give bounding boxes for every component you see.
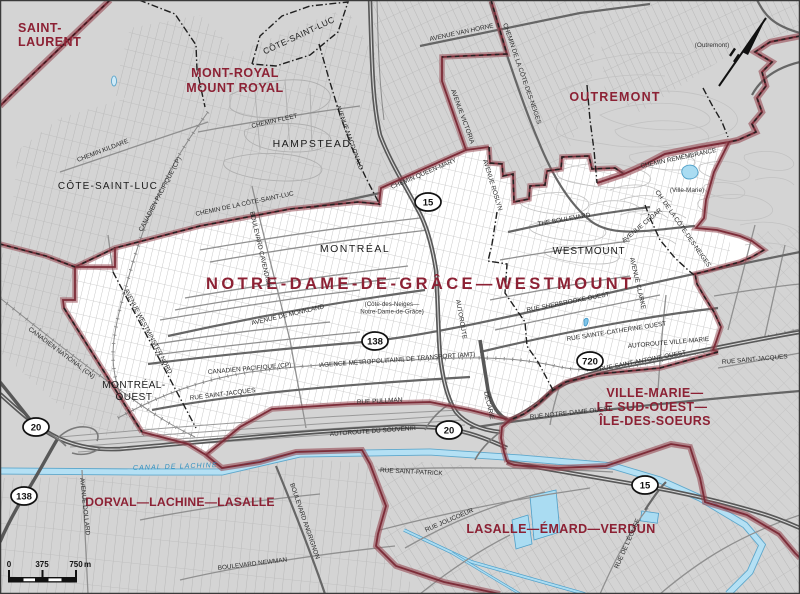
svg-text:(Outremont): (Outremont): [695, 42, 729, 49]
svg-text:720: 720: [582, 357, 598, 368]
svg-text:MONT-ROYAL: MONT-ROYAL: [191, 66, 279, 80]
svg-text:375: 375: [35, 560, 49, 569]
svg-text:CÔTE-SAINT-LUC: CÔTE-SAINT-LUC: [58, 179, 158, 192]
svg-text:15: 15: [423, 198, 434, 209]
svg-text:SAINT-: SAINT-: [18, 21, 62, 35]
svg-text:HAMPSTEAD: HAMPSTEAD: [273, 138, 352, 150]
svg-text:138: 138: [367, 337, 383, 348]
svg-text:WESTMOUNT: WESTMOUNT: [553, 246, 626, 257]
svg-text:(Ville-Marie): (Ville-Marie): [670, 187, 704, 194]
svg-text:VILLE-MARIE—: VILLE-MARIE—: [606, 386, 703, 400]
svg-text:LE SUD-OUEST—: LE SUD-OUEST—: [597, 400, 708, 414]
svg-text:OUEST: OUEST: [116, 392, 153, 403]
svg-text:LAURENT: LAURENT: [18, 35, 81, 49]
svg-text:20: 20: [444, 426, 455, 437]
svg-text:DORVAL—LACHINE—LASALLE: DORVAL—LACHINE—LASALLE: [85, 495, 274, 509]
svg-text:OUTREMONT: OUTREMONT: [569, 90, 660, 104]
svg-text:ÎLE-DES-SOEURS: ÎLE-DES-SOEURS: [598, 413, 711, 428]
svg-text:MOUNT ROYAL: MOUNT ROYAL: [186, 81, 283, 95]
svg-text:20: 20: [31, 423, 42, 434]
svg-text:750: 750: [69, 560, 83, 569]
svg-text:0: 0: [7, 560, 12, 569]
svg-text:Notre-Dame-de-Grâce): Notre-Dame-de-Grâce): [360, 309, 424, 316]
svg-text:(Côte-des-Neiges—: (Côte-des-Neiges—: [365, 301, 420, 308]
svg-text:138: 138: [16, 492, 32, 503]
svg-text:MONTRÉAL-: MONTRÉAL-: [102, 378, 165, 391]
svg-text:MONTRÉAL: MONTRÉAL: [320, 242, 390, 255]
svg-text:15: 15: [640, 481, 651, 492]
svg-text:m: m: [84, 560, 91, 569]
